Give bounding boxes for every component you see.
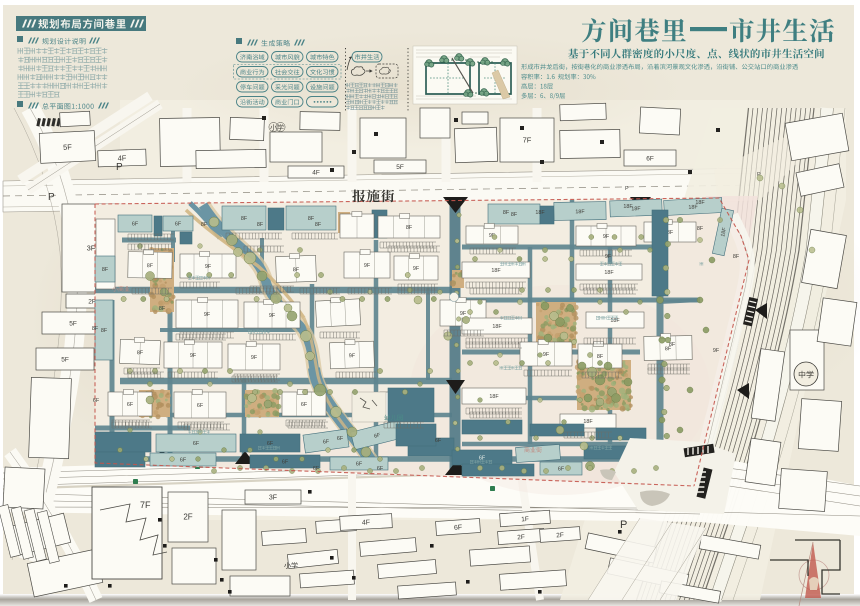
svg-text:9F: 9F (190, 353, 197, 359)
svg-text:6F: 6F (356, 462, 363, 468)
svg-text:6F: 6F (267, 441, 274, 447)
svg-text:18F: 18F (695, 200, 705, 206)
svg-text:18F: 18F (583, 419, 593, 425)
svg-text:9F: 9F (413, 266, 420, 272)
svg-text:3F: 3F (87, 244, 96, 253)
svg-text:18F: 18F (535, 210, 545, 216)
svg-text:P: P (620, 519, 627, 531)
svg-text:6F: 6F (558, 467, 565, 473)
svg-text:6F: 6F (377, 466, 384, 472)
svg-text:8F: 8F (201, 222, 208, 228)
svg-text:8F: 8F (733, 254, 740, 260)
svg-text:8F: 8F (406, 225, 413, 231)
svg-text:8F: 8F (511, 212, 518, 218)
svg-text:8F: 8F (101, 328, 108, 334)
svg-text:6F: 6F (193, 441, 200, 447)
svg-text:18F: 18F (623, 204, 633, 210)
svg-text:8F: 8F (503, 210, 510, 216)
svg-text:4F: 4F (362, 519, 371, 526)
svg-text:5F: 5F (63, 142, 73, 151)
svg-text:8F: 8F (102, 267, 109, 273)
svg-text:6F: 6F (435, 438, 442, 444)
svg-text:18F: 18F (604, 270, 614, 276)
svg-text:8F: 8F (315, 222, 322, 228)
svg-text:9F: 9F (364, 263, 371, 269)
svg-text:8F: 8F (241, 216, 248, 222)
svg-text:6F: 6F (313, 466, 320, 472)
svg-text:6F: 6F (180, 458, 187, 464)
svg-text:6F: 6F (479, 456, 486, 462)
svg-text:18F: 18F (631, 206, 641, 212)
svg-text:18F: 18F (575, 209, 585, 215)
svg-text:2F: 2F (517, 534, 525, 542)
svg-text:6F: 6F (282, 460, 289, 466)
svg-text:8F: 8F (92, 326, 99, 332)
svg-text:6F: 6F (175, 222, 182, 228)
svg-text:6F: 6F (646, 156, 654, 163)
svg-text:8F: 8F (147, 263, 154, 269)
svg-text:9F: 9F (204, 312, 211, 318)
svg-text:8F: 8F (669, 342, 676, 348)
svg-text:P: P (48, 192, 55, 203)
svg-text:2F: 2F (183, 513, 192, 522)
svg-text:9F: 9F (269, 313, 276, 319)
svg-text:1F: 1F (521, 516, 529, 524)
svg-text:2F: 2F (556, 532, 564, 540)
svg-text:9F: 9F (543, 352, 550, 358)
svg-text:5F: 5F (61, 357, 69, 364)
svg-text:9F: 9F (605, 254, 612, 260)
svg-text:8F: 8F (308, 216, 315, 222)
svg-text:8F: 8F (159, 306, 166, 312)
svg-text:5F: 5F (396, 164, 404, 171)
svg-text:3F: 3F (269, 495, 277, 502)
svg-text:6F: 6F (93, 398, 100, 404)
svg-text:6F: 6F (301, 402, 308, 408)
svg-text:8F: 8F (257, 222, 264, 228)
svg-text:18F: 18F (610, 318, 620, 324)
svg-text:6F: 6F (337, 436, 344, 442)
svg-text:6F: 6F (454, 524, 463, 532)
svg-text:6F: 6F (132, 222, 139, 228)
svg-text:7F: 7F (140, 500, 151, 510)
svg-text:4F: 4F (312, 170, 320, 177)
svg-text:9F: 9F (251, 355, 258, 361)
svg-text:9F: 9F (603, 234, 610, 240)
svg-text:18F: 18F (489, 394, 499, 400)
svg-text:18F: 18F (492, 324, 502, 330)
svg-text:8F: 8F (137, 350, 144, 356)
svg-text:18F: 18F (491, 268, 501, 274)
svg-text:9F: 9F (349, 353, 356, 359)
svg-text:9F: 9F (713, 348, 720, 354)
svg-text:7F: 7F (523, 136, 532, 145)
svg-text:8F: 8F (597, 354, 604, 360)
svg-text:P: P (116, 162, 123, 173)
svg-text:9F: 9F (205, 264, 212, 270)
svg-text:8F: 8F (697, 226, 704, 232)
svg-text:5F: 5F (69, 321, 77, 328)
svg-text:P: P (625, 186, 629, 192)
svg-text:6F: 6F (127, 402, 134, 408)
svg-text:6F: 6F (197, 403, 204, 409)
